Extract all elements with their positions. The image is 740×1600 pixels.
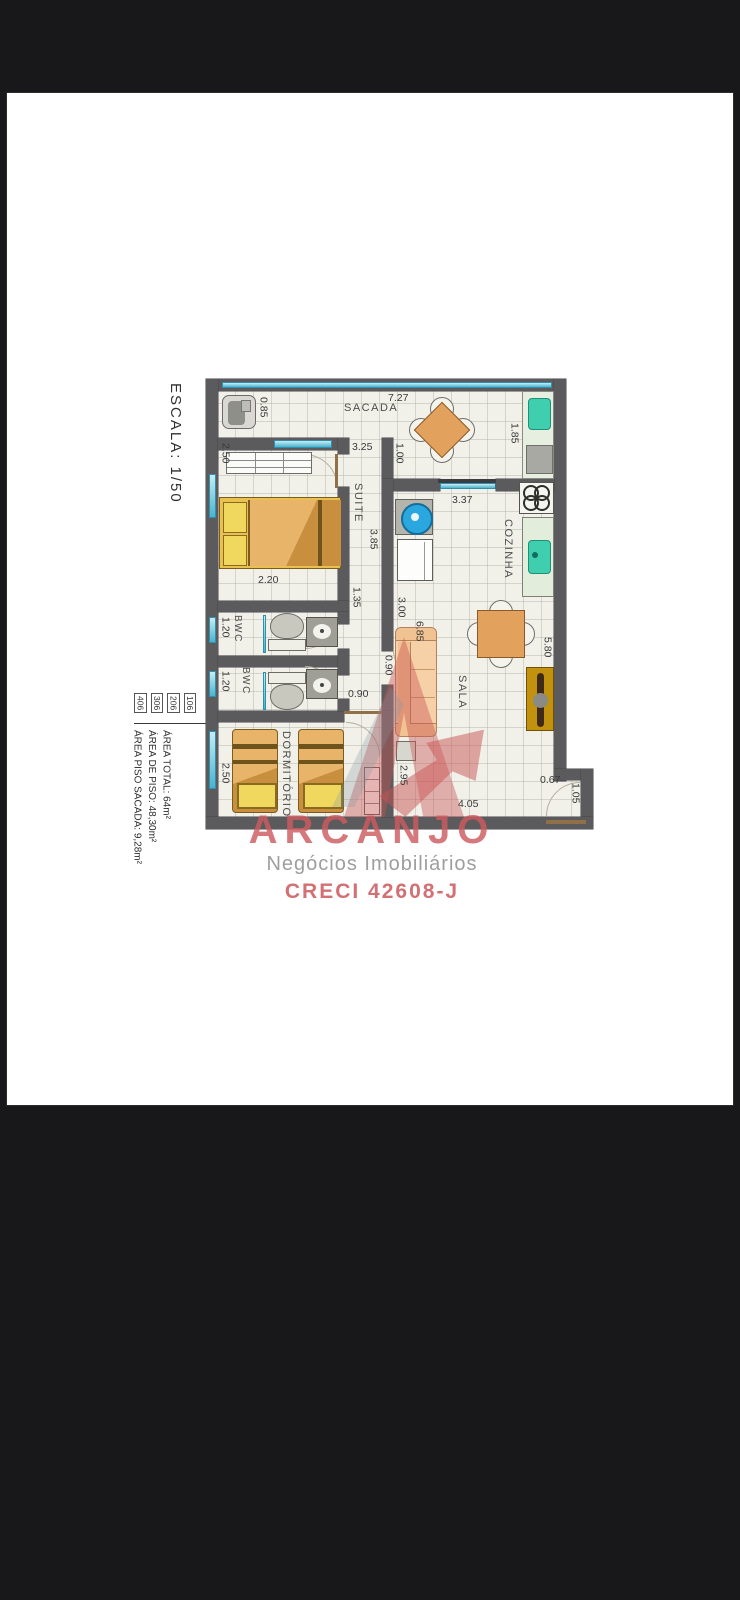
dim-label: 3.37	[452, 495, 472, 506]
dim-label: 5.80	[542, 637, 553, 657]
single-bed-icon	[232, 729, 278, 813]
window	[209, 474, 216, 518]
unit-tag: 306	[151, 693, 164, 713]
wall	[382, 711, 393, 817]
agency-creci: CRECI 42608-J	[172, 880, 572, 904]
single-bed-icon	[298, 729, 344, 813]
glass-door	[440, 483, 496, 489]
shower-glass	[263, 615, 266, 653]
window	[222, 382, 552, 388]
unit-tag-row: 406 306 206 106	[134, 693, 196, 713]
toilet-tank	[268, 639, 306, 651]
vanity-sink-icon	[306, 669, 338, 699]
room-label-sacada: SACADA	[344, 403, 398, 414]
washer-icon	[397, 539, 433, 581]
scale-label: ESCALA: 1/50	[167, 383, 184, 504]
dim-label: 1.35	[351, 587, 362, 607]
room-label-bwc1: BWC	[232, 615, 242, 643]
agency-subtitle: Negócios Imobiliários	[172, 853, 572, 876]
toilet-icon	[270, 613, 304, 639]
kitchen-counter-icon	[522, 517, 554, 597]
agency-logo: ARCANJO Negócios Imobiliários CRECI 4260…	[172, 809, 572, 904]
laundry-tub-icon	[222, 395, 256, 429]
wardrobe-icon	[226, 452, 312, 474]
window	[209, 617, 216, 643]
wall	[382, 685, 393, 711]
photo-sheet: ESCALA: 1/50 406 306 206 106 ÁREA TOTAL:…	[6, 92, 734, 1106]
toilet-icon	[270, 684, 304, 710]
unit-tag: 206	[167, 693, 180, 713]
dim-label: 1.20	[220, 617, 231, 637]
wall	[218, 601, 349, 612]
unit-tag: 106	[184, 693, 197, 713]
dim-label: 1.00	[394, 443, 405, 463]
dim-label: 2.50	[220, 763, 231, 783]
dim-label: 0.90	[383, 655, 394, 675]
vanity-sink-icon	[306, 617, 338, 647]
room-label-suite: SUITE	[352, 483, 363, 523]
tv-rack-icon	[526, 667, 554, 731]
area-sacada: ÁREA PISO SACADA: 9,28m²	[129, 730, 144, 930]
dim-label: 7.27	[388, 393, 408, 404]
balcony-table-icon	[411, 399, 471, 459]
wall	[338, 699, 349, 711]
wall	[338, 612, 349, 624]
balcony-counter-icon	[522, 391, 554, 479]
wall	[382, 479, 393, 651]
dim-label: 2.50	[220, 443, 231, 463]
phone-screen: { "colors": { "page_bg": "#18181a", "she…	[0, 0, 740, 1600]
area-total: ÁREA TOTAL: 64m²	[158, 730, 173, 930]
dim-label: 0.90	[348, 689, 368, 700]
room-label-sala: SALA	[456, 675, 467, 709]
dim-label: 1.20	[220, 671, 231, 691]
shower-glass	[263, 672, 266, 710]
dim-label: 0.85	[258, 397, 269, 417]
dim-label: 1.85	[509, 423, 520, 443]
wall	[218, 656, 349, 667]
dim-label: 3.25	[352, 442, 372, 453]
dim-label: 2.95	[398, 765, 409, 785]
window	[209, 731, 216, 789]
dim-label: 2.20	[258, 575, 278, 586]
door-leaf	[344, 711, 382, 714]
window	[209, 671, 216, 697]
area-summary: ÁREA TOTAL: 64m² ÁREA DE PISO: 48,30m² Á…	[129, 730, 173, 930]
room-label-cozinha: COZINHA	[502, 519, 513, 579]
unit-tag: 406	[134, 693, 147, 713]
dim-label: 1.05	[570, 783, 581, 803]
agency-name: ARCANJO	[172, 809, 572, 851]
floor-plan: SACADA SUITE BWC BWC DORMITÓRIO COZINHA …	[206, 379, 593, 829]
dim-label: 3.00	[396, 597, 407, 617]
double-bed-icon	[219, 497, 341, 569]
dining-table-icon	[468, 601, 532, 665]
area-piso: ÁREA DE PISO: 48,30m²	[144, 730, 159, 930]
dim-label: 3.85	[368, 529, 379, 549]
toilet-tank	[268, 672, 306, 684]
door-leaf	[335, 454, 338, 488]
wall	[338, 438, 349, 454]
window	[274, 440, 332, 448]
dim-label: 6.85	[414, 621, 425, 641]
room-label-dormitorio: DORMITÓRIO	[280, 731, 291, 818]
wall	[338, 649, 349, 675]
dim-label: 0.67	[540, 775, 560, 786]
laundry-tank-icon	[395, 499, 433, 535]
sofa-icon	[395, 627, 437, 737]
room-label-bwc2: BWC	[240, 667, 250, 695]
stove-icon	[519, 482, 554, 514]
wall	[554, 379, 566, 781]
wall	[218, 711, 344, 722]
side-table-icon	[396, 741, 416, 761]
